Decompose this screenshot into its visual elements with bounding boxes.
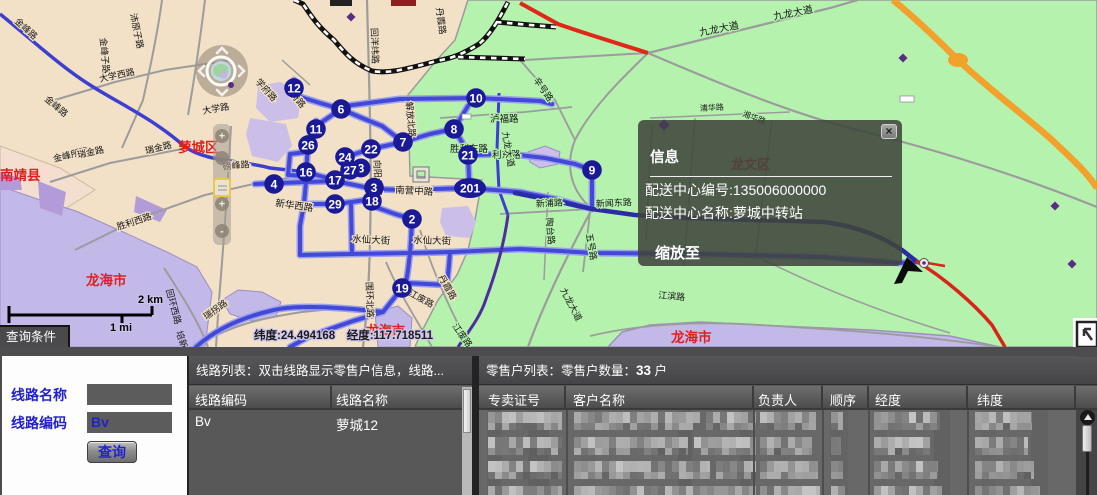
svg-text:2: 2: [409, 213, 416, 227]
svg-text:萝城区: 萝城区: [178, 139, 219, 155]
svg-text:+: +: [219, 199, 225, 211]
svg-text:1 mi: 1 mi: [110, 322, 132, 334]
svg-text:回洋纬路: 回洋纬路: [369, 28, 381, 64]
svg-text:26: 26: [301, 139, 315, 153]
svg-text:19: 19: [395, 282, 409, 296]
svg-text:6: 6: [338, 103, 345, 117]
svg-text:水仙大街: 水仙大街: [352, 233, 391, 247]
svg-text:4: 4: [271, 178, 278, 192]
svg-text:201: 201: [460, 182, 480, 196]
svg-text:29: 29: [328, 198, 342, 212]
svg-text:22: 22: [364, 143, 378, 157]
svg-text:9: 9: [589, 164, 596, 178]
svg-text:12: 12: [287, 82, 301, 96]
svg-text:新浦路: 新浦路: [536, 197, 564, 209]
svg-text:南营中路: 南营中路: [395, 184, 434, 198]
svg-text:11: 11: [310, 123, 323, 137]
svg-text:龙海市: 龙海市: [85, 272, 127, 288]
svg-text:17: 17: [328, 174, 342, 188]
svg-text:水仙大街: 水仙大街: [413, 234, 452, 247]
svg-text:-: -: [220, 226, 224, 238]
svg-text:龙海市: 龙海市: [670, 329, 712, 345]
svg-text:24: 24: [338, 151, 352, 165]
svg-text:7: 7: [400, 136, 407, 150]
svg-text:围环北路: 围环北路: [364, 282, 376, 318]
svg-text:纬度:24.494168 经度:117.718511: 纬度:24.494168 经度:117.718511: [254, 328, 434, 342]
svg-text:2 km: 2 km: [138, 294, 163, 306]
svg-text:南靖县: 南靖县: [0, 167, 41, 183]
svg-text:浦华路: 浦华路: [700, 102, 724, 113]
svg-text:21: 21: [461, 149, 475, 163]
svg-text:8: 8: [451, 123, 458, 137]
svg-text:3: 3: [371, 181, 378, 195]
svg-text:新闻东路: 新闻东路: [596, 196, 633, 209]
svg-text:泸福路: 泸福路: [490, 113, 519, 125]
svg-text:10: 10: [469, 92, 483, 106]
svg-text:+: +: [219, 131, 225, 143]
svg-text:16: 16: [299, 166, 313, 180]
